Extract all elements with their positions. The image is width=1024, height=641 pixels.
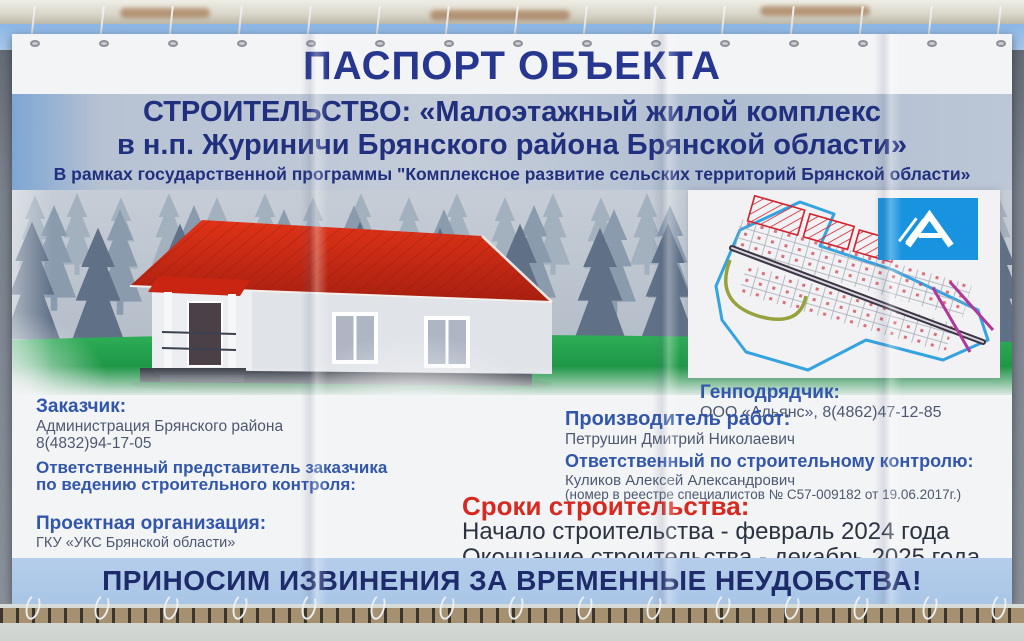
house <box>130 220 552 394</box>
rust-streak <box>760 6 870 16</box>
design-org-label: Проектная организация: <box>36 513 266 535</box>
rust-streak <box>120 8 210 18</box>
representative-label-line2: по ведению строительного контроля: <box>36 475 356 495</box>
customer-phone: 8(4832)94-17-05 <box>36 435 151 453</box>
subtitle-band: СТРОИТЕЛЬСТВО: «Малоэтажный жилой компле… <box>12 94 1012 190</box>
subtitle-line2: в н.п. Журиничи Брянского района Брянско… <box>12 129 1012 162</box>
subtitle-line1: СТРОИТЕЛЬСТВО: «Малоэтажный жилой компле… <box>12 96 1012 129</box>
photo-of-construction-banner: ПАСПОРТ ОБЪЕКТА СТРОИТЕЛЬСТВО: «Малоэтаж… <box>0 0 1024 641</box>
contractor-label: Генподрядчик: <box>700 382 840 404</box>
metal-rail <box>0 0 1024 26</box>
customer-name: Администрация Брянского района <box>36 418 283 436</box>
works-manager-label: Производитель работ: <box>565 408 790 431</box>
schedule-start: Начало строительства - февраль 2024 года <box>462 518 950 546</box>
alliance-logo-icon <box>892 205 964 253</box>
window <box>424 316 470 368</box>
banner-title: ПАСПОРТ ОБЪЕКТА <box>12 44 1012 89</box>
alliance-logo <box>878 198 978 260</box>
rust-streak <box>430 10 570 20</box>
banner: ПАСПОРТ ОБЪЕКТА СТРОИТЕЛЬСТВО: «Малоэтаж… <box>12 34 1012 604</box>
customer-label: Заказчик: <box>36 396 126 418</box>
window <box>332 312 378 364</box>
control-label: Ответственный по строительному контролю: <box>565 451 973 472</box>
program-line: В рамках государственной программы "Комп… <box>12 164 1012 185</box>
works-manager-name: Петрушин Дмитрий Николаевич <box>565 431 795 449</box>
site-plan-panel <box>688 190 1000 378</box>
design-org-name: ГКУ «УКС Брянской области» <box>36 535 235 551</box>
